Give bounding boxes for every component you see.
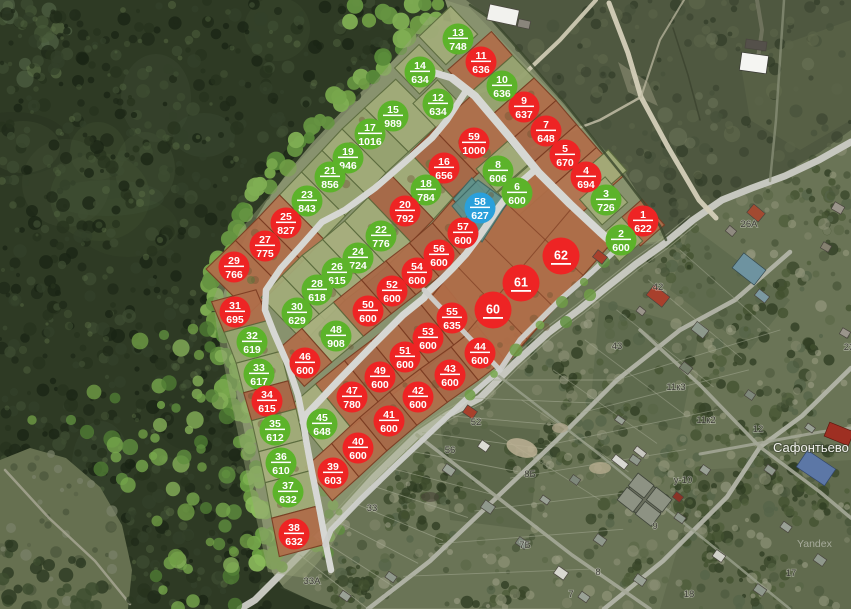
svg-text:33: 33: [253, 362, 265, 374]
svg-text:42: 42: [412, 385, 424, 397]
svg-text:33: 33: [367, 503, 378, 514]
svg-text:612: 612: [266, 432, 284, 444]
svg-text:18: 18: [684, 589, 695, 600]
svg-text:1016: 1016: [358, 136, 382, 148]
svg-text:19: 19: [342, 146, 354, 158]
svg-text:11к3: 11к3: [666, 382, 685, 393]
svg-text:11к2: 11к2: [696, 415, 715, 426]
svg-text:11: 11: [475, 50, 486, 62]
svg-text:32: 32: [246, 330, 258, 342]
svg-text:622: 622: [634, 223, 652, 235]
svg-text:44: 44: [474, 341, 486, 353]
svg-text:10: 10: [496, 74, 508, 86]
svg-text:43: 43: [444, 363, 456, 375]
svg-text:600: 600: [396, 359, 414, 371]
svg-text:62: 62: [554, 249, 568, 263]
svg-text:619: 619: [243, 344, 261, 356]
svg-text:21: 21: [324, 165, 336, 177]
svg-text:39: 39: [327, 461, 339, 473]
svg-text:600: 600: [359, 313, 377, 325]
svg-text:47: 47: [346, 385, 358, 397]
svg-text:33А: 33А: [304, 576, 322, 587]
svg-text:600: 600: [612, 242, 630, 254]
svg-text:600: 600: [408, 275, 426, 287]
svg-text:634: 634: [429, 106, 447, 118]
svg-text:600: 600: [380, 423, 398, 435]
svg-text:600: 600: [409, 399, 427, 411]
svg-text:37: 37: [282, 480, 294, 492]
svg-text:629: 629: [288, 315, 306, 327]
svg-text:28: 28: [311, 278, 323, 290]
svg-text:776: 776: [372, 238, 390, 250]
svg-text:610: 610: [272, 465, 290, 477]
svg-text:12: 12: [432, 92, 444, 104]
svg-text:23: 23: [301, 189, 313, 201]
svg-text:49: 49: [374, 365, 386, 377]
svg-text:56: 56: [445, 445, 456, 456]
svg-text:627: 627: [471, 210, 489, 222]
svg-text:56: 56: [433, 243, 445, 255]
svg-text:46: 46: [299, 351, 311, 363]
svg-text:989: 989: [384, 118, 402, 130]
svg-text:36: 36: [275, 451, 287, 463]
svg-text:606: 606: [489, 173, 507, 185]
svg-text:58: 58: [474, 196, 486, 208]
svg-text:22: 22: [375, 224, 387, 236]
svg-text:636: 636: [472, 64, 490, 76]
svg-text:600: 600: [371, 379, 389, 391]
svg-text:7Б: 7Б: [519, 540, 531, 551]
svg-text:766: 766: [225, 269, 243, 281]
svg-text:52: 52: [471, 417, 482, 428]
svg-text:51: 51: [399, 345, 411, 357]
svg-text:615: 615: [258, 403, 276, 415]
svg-text:38: 38: [288, 522, 300, 534]
svg-text:25: 25: [280, 211, 292, 223]
svg-text:775: 775: [256, 248, 274, 260]
svg-text:670: 670: [556, 157, 574, 169]
svg-text:30: 30: [291, 301, 303, 313]
svg-text:60: 60: [486, 303, 500, 317]
svg-text:600: 600: [349, 450, 367, 462]
svg-text:634: 634: [411, 74, 429, 86]
svg-text:23: 23: [844, 342, 851, 353]
svg-text:908: 908: [327, 338, 345, 350]
svg-text:5: 5: [562, 143, 568, 155]
svg-text:695: 695: [226, 314, 244, 326]
svg-text:52: 52: [386, 279, 398, 291]
svg-text:2: 2: [618, 228, 624, 240]
svg-text:15: 15: [387, 104, 399, 116]
svg-text:16: 16: [438, 156, 450, 168]
svg-text:618: 618: [308, 292, 326, 304]
svg-text:53: 53: [422, 326, 434, 338]
svg-text:632: 632: [285, 536, 303, 548]
svg-text:635: 635: [443, 320, 461, 332]
svg-text:17: 17: [364, 122, 376, 134]
svg-text:6: 6: [514, 181, 520, 193]
svg-text:26А: 26А: [741, 219, 759, 230]
svg-text:45: 45: [316, 412, 328, 424]
svg-text:27: 27: [259, 234, 271, 246]
svg-text:603: 603: [324, 475, 342, 487]
svg-text:8Б: 8Б: [524, 469, 536, 480]
svg-text:Yandex: Yandex: [797, 538, 833, 550]
svg-text:856: 856: [321, 179, 339, 191]
svg-text:43: 43: [612, 341, 623, 352]
svg-text:843: 843: [298, 203, 316, 215]
svg-text:57: 57: [457, 221, 469, 233]
svg-text:34: 34: [261, 389, 273, 401]
svg-text:59: 59: [468, 131, 480, 143]
svg-text:14: 14: [414, 60, 426, 72]
svg-text:748: 748: [449, 41, 467, 53]
svg-text:632: 632: [279, 494, 297, 506]
svg-text:29: 29: [228, 255, 240, 267]
svg-text:1000: 1000: [462, 145, 486, 157]
svg-text:648: 648: [313, 426, 331, 438]
svg-text:Сафонтьево: Сафонтьево: [773, 440, 849, 455]
svg-text:20: 20: [399, 199, 411, 211]
svg-text:26: 26: [331, 261, 343, 273]
svg-text:600: 600: [454, 235, 472, 247]
svg-text:42: 42: [653, 282, 664, 293]
svg-text:600: 600: [383, 293, 401, 305]
svg-text:31: 31: [229, 300, 241, 312]
svg-text:3: 3: [603, 188, 609, 200]
svg-text:792: 792: [396, 213, 414, 225]
svg-text:41: 41: [383, 409, 395, 421]
svg-text:600: 600: [471, 355, 489, 367]
svg-text:600: 600: [296, 365, 314, 377]
svg-text:54: 54: [411, 261, 423, 273]
svg-text:4: 4: [583, 165, 589, 177]
svg-text:694: 694: [577, 179, 595, 191]
svg-text:8: 8: [595, 567, 600, 578]
svg-text:24: 24: [352, 246, 364, 258]
svg-text:726: 726: [597, 202, 615, 214]
svg-text:9: 9: [652, 521, 657, 532]
svg-text:827: 827: [277, 225, 295, 237]
svg-text:у-10: у-10: [674, 475, 692, 486]
svg-text:600: 600: [441, 377, 459, 389]
svg-text:636: 636: [493, 88, 511, 100]
svg-text:600: 600: [419, 340, 437, 352]
svg-text:784: 784: [417, 192, 435, 204]
svg-text:7: 7: [543, 119, 549, 131]
svg-text:55: 55: [446, 306, 458, 318]
svg-text:35: 35: [269, 418, 281, 430]
svg-text:61: 61: [514, 276, 528, 290]
svg-text:9: 9: [521, 95, 527, 107]
svg-text:8: 8: [495, 159, 501, 171]
svg-text:648: 648: [537, 133, 555, 145]
svg-text:17: 17: [786, 568, 797, 579]
svg-text:600: 600: [430, 257, 448, 269]
svg-text:780: 780: [343, 399, 361, 411]
svg-text:1: 1: [640, 209, 646, 221]
svg-text:40: 40: [352, 436, 364, 448]
svg-text:18: 18: [420, 178, 432, 190]
svg-text:12: 12: [753, 424, 764, 435]
svg-text:637: 637: [515, 109, 533, 121]
svg-text:50: 50: [362, 299, 374, 311]
svg-text:7: 7: [568, 589, 573, 600]
svg-text:48: 48: [330, 324, 342, 336]
svg-text:600: 600: [508, 195, 526, 207]
svg-text:13: 13: [452, 27, 464, 39]
